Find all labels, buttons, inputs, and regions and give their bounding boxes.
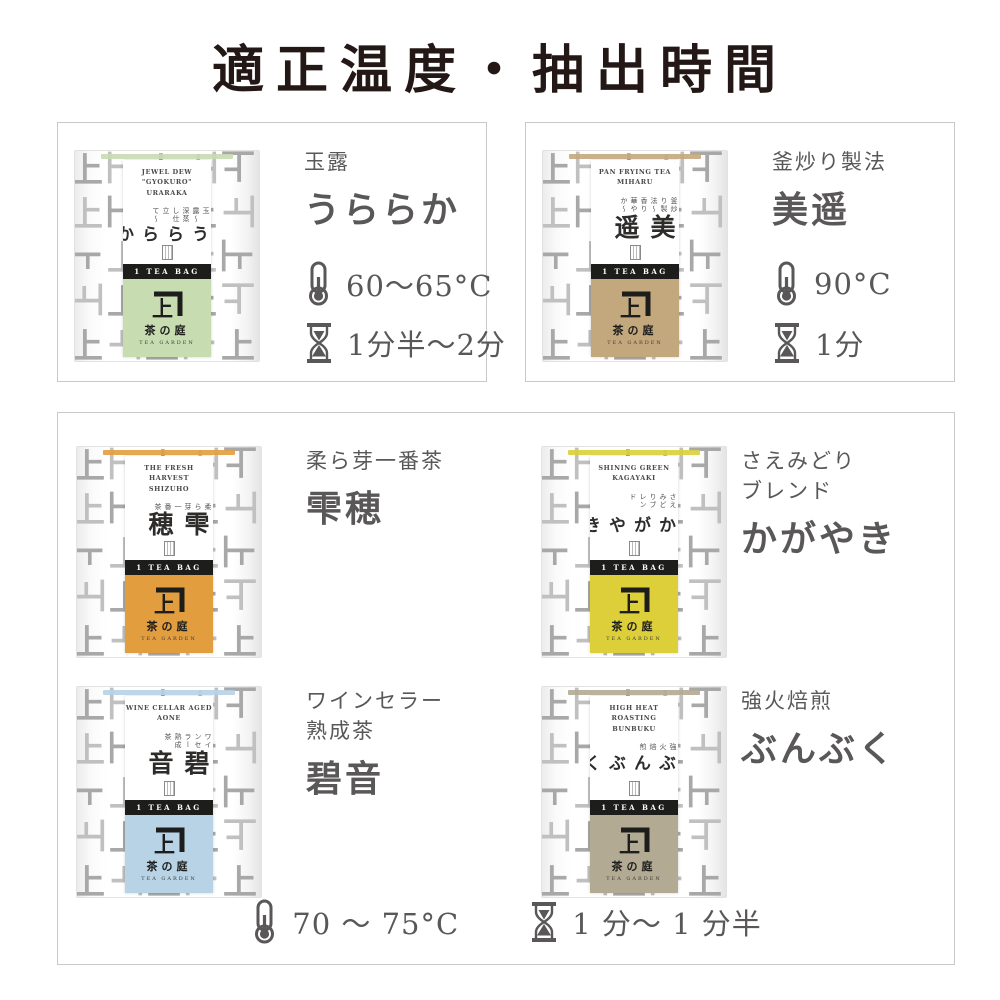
package-vertical-text: 強火焙煎 ぶんぶく [590, 734, 678, 781]
package-image-aone: 上上上上上上上上上上上上上上上上上上上上上上上上上 WINE CELLAR AG… [76, 686, 262, 898]
package-side-note: さえみどりブレンド [628, 493, 678, 516]
package-eng-title: JEWEL DEW "GYOKURO" URARAKA [123, 167, 211, 198]
product-name: 美遥 [772, 181, 1000, 233]
time-row: 1分 [772, 322, 1000, 364]
package-side-note: 玉露〜深蒸し仕立て〜 [151, 207, 211, 225]
package-seal-bar [103, 690, 235, 695]
package-vertical-text: さえみどりブレンド かがやき [590, 484, 678, 541]
product-info-uraraka: 玉露 うららか 60〜65°C 1分半〜2分 [304, 147, 534, 364]
kaneju-mark-icon [152, 586, 186, 616]
temperature-row: 70 〜 75°C [250, 899, 459, 944]
product-card-uraraka: 上上上上上上上上上上上上上上上上上上上上上上上上上 JEWEL DEW "GYO… [57, 122, 487, 382]
package-side-note: 釜炒り製法〜香り華やか〜 [619, 197, 679, 214]
package-image-miharu: 上上上上上上上上上上上上上上上上上上上上上上上上上 PAN FRYING TEA… [542, 150, 728, 362]
thermometer-icon [304, 261, 333, 306]
tea-bag-band: 1 TEA BAG [590, 560, 678, 575]
package-vertical-name: 美遥 [607, 214, 679, 245]
package-seal-bar [101, 154, 233, 159]
product-name: 雫穂 [306, 480, 536, 532]
package-side-note: ワインセラー熟成茶 [163, 733, 213, 750]
package-label: SHINING GREEN KAGAYAKI さえみどりブレンド かがやき 1 … [590, 456, 678, 653]
product-subtitle: 強火焙煎 [741, 686, 971, 716]
hourglass-icon [772, 323, 802, 363]
page-title: 適正温度・抽出時間 [0, 28, 1000, 103]
package-image-shizuho: 上上上上上上上上上上上上上上上上上上上上上上上上上 THE FRESH HARV… [76, 446, 262, 658]
package-label: WINE CELLAR AGED AONE ワインセラー熟成茶 碧音 1 TEA… [125, 696, 213, 893]
package-eng-title: SHINING GREEN KAGAYAKI [598, 463, 669, 484]
package-bottom: 茶の庭 TEA GARDEN [123, 279, 211, 357]
temperature-value: 70 〜 75°C [292, 901, 459, 943]
time-row: 1 分〜 1 分半 [529, 901, 762, 943]
package-seal-bar [568, 450, 700, 455]
stamp-seal-icon [630, 245, 641, 260]
stamp-seal-icon [162, 245, 173, 260]
package-bottom: 茶の庭 TEA GARDEN [591, 279, 679, 357]
kaneju-mark-icon [150, 290, 184, 320]
package-eng-title: THE FRESH HARVEST SHIZUHO [125, 463, 213, 494]
tea-bag-band: 1 TEA BAG [591, 264, 679, 279]
time-value: 1分 [815, 322, 864, 364]
product-info-kagayaki: さえみどり ブレンド かがやき [741, 446, 971, 562]
package-vertical-text: 釜炒り製法〜香り華やか〜 美遥 [591, 188, 679, 245]
package-image-bunbuku: 上上上上上上上上上上上上上上上上上上上上上上上上上 HIGH HEAT ROAS… [541, 686, 727, 898]
time-row: 1分半〜2分 [304, 322, 534, 364]
stamp-seal-icon [164, 541, 175, 556]
brand-name: 茶の庭 [612, 858, 657, 874]
thermometer-icon [250, 899, 279, 944]
brand-subtitle: TEA GARDEN [606, 636, 662, 642]
package-eng-title: WINE CELLAR AGED AONE [126, 703, 212, 724]
package-seal-bar [569, 154, 701, 159]
kaneju-mark-icon [152, 826, 186, 856]
brand-name: 茶の庭 [612, 618, 657, 634]
tea-bag-band: 1 TEA BAG [123, 264, 211, 279]
brand-subtitle: TEA GARDEN [606, 876, 662, 882]
package-label: JEWEL DEW "GYOKURO" URARAKA 玉露〜深蒸し仕立て〜 う… [123, 160, 211, 357]
stamp-seal-icon [629, 541, 640, 556]
product-subtitle: 玉露 [304, 147, 534, 177]
brand-name: 茶の庭 [147, 618, 192, 634]
stamp-seal-icon [629, 781, 640, 796]
product-name: うららか [304, 181, 534, 233]
brand-subtitle: TEA GARDEN [139, 340, 195, 346]
brand-name: 茶の庭 [145, 322, 190, 338]
product-subtitle: 柔ら芽一番茶 [306, 446, 536, 476]
stamp-seal-icon [164, 781, 175, 796]
brand-subtitle: TEA GARDEN [141, 636, 197, 642]
tea-bag-band: 1 TEA BAG [125, 560, 213, 575]
temperature-value: 90°C [814, 267, 892, 301]
package-label: THE FRESH HARVEST SHIZUHO 柔ら芽一番茶 雫穂 1 TE… [125, 456, 213, 653]
shared-brewing-row: 70 〜 75°C 1 分〜 1 分半 [58, 899, 954, 944]
product-name: 碧音 [306, 750, 536, 802]
product-subtitle: さえみどり ブレンド [741, 446, 971, 506]
product-card-miharu: 上上上上上上上上上上上上上上上上上上上上上上上上上 PAN FRYING TEA… [525, 122, 955, 382]
time-value: 1 分〜 1 分半 [572, 901, 762, 943]
hourglass-icon [304, 323, 334, 363]
package-bottom: 茶の庭 TEA GARDEN [125, 815, 213, 893]
package-image-uraraka: 上上上上上上上上上上上上上上上上上上上上上上上上上 JEWEL DEW "GYO… [74, 150, 260, 362]
package-vertical-name: うららか [123, 225, 211, 245]
brand-name: 茶の庭 [147, 858, 192, 874]
package-label: HIGH HEAT ROASTING BUNBUKU 強火焙煎 ぶんぶく 1 T… [590, 696, 678, 893]
package-eng-title: HIGH HEAT ROASTING BUNBUKU [590, 703, 678, 734]
product-group-card: 上上上上上上上上上上上上上上上上上上上上上上上上上 THE FRESH HARV… [57, 412, 955, 965]
package-seal-bar [568, 690, 700, 695]
kaneju-mark-icon [617, 586, 651, 616]
package-eng-title: PAN FRYING TEA MIHARU [599, 167, 671, 188]
package-side-note: 強火焙煎 [638, 743, 678, 754]
kaneju-mark-icon [617, 826, 651, 856]
tea-bag-band: 1 TEA BAG [590, 800, 678, 815]
package-side-note: 柔ら芽一番茶 [153, 503, 213, 511]
package-vertical-name: ぶんぶく [590, 754, 678, 781]
temperature-row: 60〜65°C [304, 261, 534, 306]
product-info-miharu: 釜炒り製法 美遥 90°C 1分 [772, 147, 1000, 364]
product-name: かがやき [741, 510, 971, 562]
temperature-value: 60〜65°C [346, 263, 493, 305]
product-info-aone: ワインセラー 熟成茶 碧音 [306, 686, 536, 802]
package-vertical-name: 雫穂 [141, 511, 213, 541]
package-vertical-text: 柔ら芽一番茶 雫穂 [125, 494, 213, 541]
package-bottom: 茶の庭 TEA GARDEN [590, 815, 678, 893]
kaneju-mark-icon [618, 290, 652, 320]
product-subtitle: 釜炒り製法 [772, 147, 1000, 177]
product-subtitle: ワインセラー 熟成茶 [306, 686, 536, 746]
package-label: PAN FRYING TEA MIHARU 釜炒り製法〜香り華やか〜 美遥 1 … [591, 160, 679, 357]
hourglass-icon [529, 902, 559, 942]
brand-subtitle: TEA GARDEN [607, 340, 663, 346]
brand-subtitle: TEA GARDEN [141, 876, 197, 882]
package-vertical-text: ワインセラー熟成茶 碧音 [125, 724, 213, 781]
time-value: 1分半〜2分 [347, 322, 506, 364]
package-vertical-name: かがやき [590, 516, 678, 541]
temperature-row: 90°C [772, 261, 1000, 306]
product-info-bunbuku: 強火焙煎 ぶんぶく [741, 686, 971, 772]
package-bottom: 茶の庭 TEA GARDEN [590, 575, 678, 653]
thermometer-icon [772, 261, 801, 306]
product-info-shizuho: 柔ら芽一番茶 雫穂 [306, 446, 536, 532]
package-vertical-name: 碧音 [141, 750, 213, 781]
package-bottom: 茶の庭 TEA GARDEN [125, 575, 213, 653]
page: 適正温度・抽出時間 上上上上上上上上上上上上上上上上上上上上上上上上上 JEWE… [0, 0, 1000, 1000]
product-name: ぶんぶく [741, 720, 971, 772]
brand-name: 茶の庭 [613, 322, 658, 338]
tea-bag-band: 1 TEA BAG [125, 800, 213, 815]
package-seal-bar [103, 450, 235, 455]
package-vertical-text: 玉露〜深蒸し仕立て〜 うららか [123, 198, 211, 245]
package-image-kagayaki: 上上上上上上上上上上上上上上上上上上上上上上上上上 SHINING GREEN … [541, 446, 727, 658]
